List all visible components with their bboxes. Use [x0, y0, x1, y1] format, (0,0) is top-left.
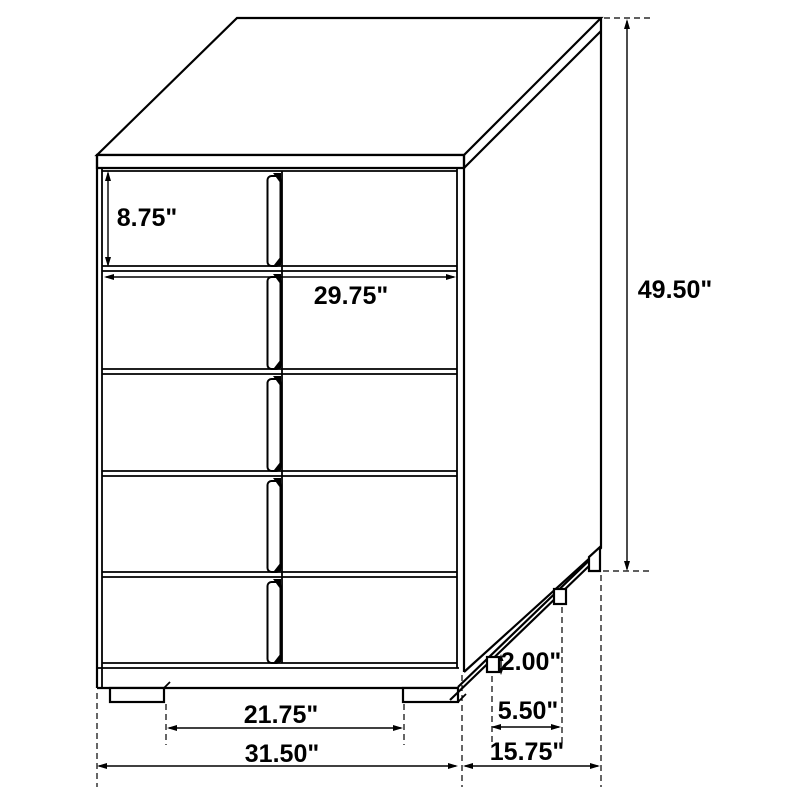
- drawer-divider-4: [102, 572, 457, 577]
- side-back-corner-foot: [589, 547, 600, 571]
- chest-body: [97, 18, 601, 688]
- side-front-foot: [487, 657, 499, 672]
- front-right-foot: [403, 688, 458, 702]
- dimension-foot-height: 2.00": [499, 648, 562, 676]
- dim-label-front-foot-spacing: 21.75": [244, 701, 318, 729]
- dim-label-foot-height: 2.00": [501, 648, 562, 676]
- drawer-divider-1: [102, 266, 457, 271]
- drawer-handle: [268, 379, 281, 471]
- dim-label-drawer-width: 29.75": [314, 282, 388, 310]
- chest-top-front-edge: [97, 155, 464, 168]
- side-plinth-bottom-rail: [450, 566, 589, 700]
- dim-label-overall-height: 49.50": [638, 276, 712, 304]
- dim-label-overall-width: 31.50": [245, 740, 319, 768]
- chest-base: [97, 547, 600, 702]
- diagram-canvas: 8.75" 29.75" 49.50" 2.00" 5.50" 21.75": [0, 0, 800, 800]
- dim-label-drawer-height: 8.75": [117, 204, 178, 232]
- front-left-foot: [110, 688, 164, 702]
- chest-top-surface: [97, 18, 601, 155]
- side-back-foot: [554, 589, 566, 604]
- dim-label-overall-depth: 15.75": [490, 738, 564, 766]
- drawer-divider-3: [102, 471, 457, 476]
- dimension-front-foot-spacing: 21.75": [167, 701, 403, 731]
- drawer-handle: [268, 277, 281, 369]
- drawer-divider-2: [102, 369, 457, 374]
- drawer-handle: [268, 582, 281, 663]
- dimension-overall-depth: 15.75": [463, 738, 600, 769]
- dim-label-side-foot-spacing: 5.50": [498, 697, 559, 725]
- dimension-drawer-height: 8.75": [105, 171, 177, 267]
- drawer-handles: [268, 173, 282, 663]
- chest-dimension-diagram: 8.75" 29.75" 49.50" 2.00" 5.50" 21.75": [0, 0, 800, 800]
- dimension-side-foot-spacing: 5.50": [491, 697, 561, 730]
- drawer-handle: [268, 176, 281, 266]
- drawer-handle: [268, 481, 281, 572]
- dimension-overall-height: 49.50": [624, 19, 712, 571]
